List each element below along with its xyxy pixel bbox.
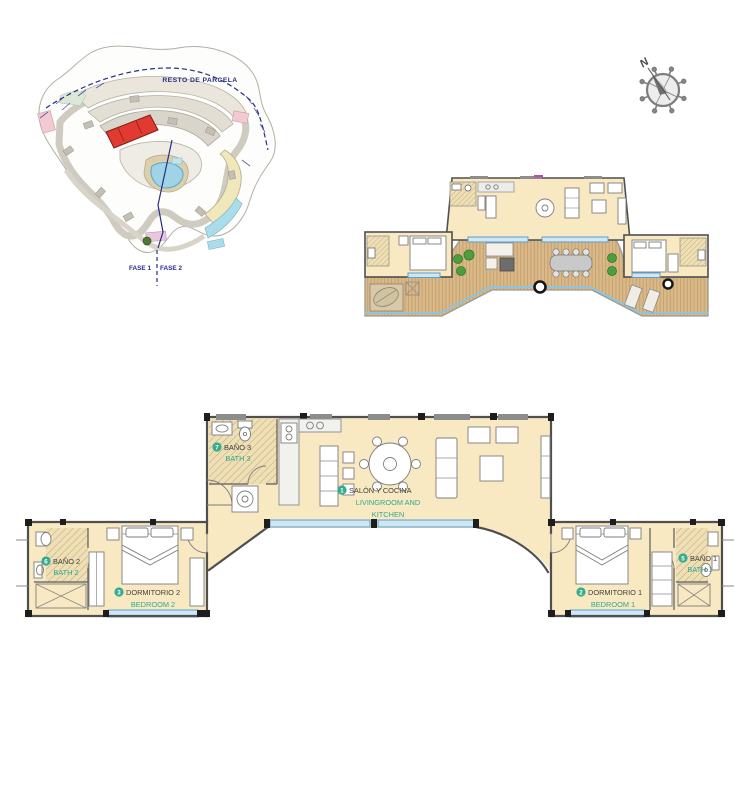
svg-text:DORMITORIO 2: DORMITORIO 2 (126, 588, 180, 597)
svg-text:BAÑO 1: BAÑO 1 (690, 554, 717, 563)
fase2-label: FASE 2 (160, 265, 182, 272)
site-pink-2 (232, 111, 249, 123)
main-floor-plan: 1 SALÓN Y COCINA LIVINGROOM AND KITCHEN … (16, 413, 734, 617)
svg-text:BAÑO 2: BAÑO 2 (53, 557, 80, 566)
svg-text:5: 5 (681, 556, 685, 563)
svg-text:BEDROOM 1: BEDROOM 1 (591, 600, 635, 609)
window-central-left (270, 520, 370, 527)
svg-text:BATH 1: BATH 1 (687, 565, 712, 574)
svg-text:SALÓN Y COCINA: SALÓN Y COCINA (349, 486, 412, 495)
svg-text:7: 7 (215, 445, 219, 452)
fase1-label: FASE 1 (129, 265, 151, 272)
washer-icon (232, 486, 258, 512)
site-cyan-block (207, 238, 224, 249)
overview-floor-plan (365, 175, 708, 316)
svg-text:6: 6 (44, 559, 48, 566)
plan-sheet-drawing: RESTO DE PARCELA FASE 1 FASE 2 N (0, 0, 749, 800)
compass-rose: N (631, 55, 695, 121)
svg-text:2: 2 (579, 590, 583, 597)
svg-text:KITCHEN: KITCHEN (372, 510, 404, 519)
site-plan: RESTO DE PARCELA FASE 1 FASE 2 (38, 46, 276, 286)
svg-text:BEDROOM 2: BEDROOM 2 (131, 600, 175, 609)
svg-text:3: 3 (117, 590, 121, 597)
plan-sheet: RESTO DE PARCELA FASE 1 FASE 2 N (0, 0, 749, 800)
svg-text:LIVINGROOM AND: LIVINGROOM AND (356, 498, 420, 507)
svg-text:BAÑO 3: BAÑO 3 (224, 443, 251, 452)
site-cyan-small (172, 158, 182, 164)
ov-kitchen-counter (478, 182, 514, 192)
window-central-right (378, 520, 476, 527)
svg-text:DORMITORIO 1: DORMITORIO 1 (588, 588, 642, 597)
resto-de-parcela-label: RESTO DE PARCELA (162, 77, 237, 84)
ov-bookcase (565, 188, 579, 218)
svg-text:1: 1 (340, 488, 344, 495)
north-label: N (638, 55, 652, 70)
site-green-dot (143, 237, 151, 245)
wardrobe2-right (190, 558, 204, 606)
wardrobe1 (652, 552, 672, 606)
svg-text:BATH 2: BATH 2 (53, 568, 78, 577)
svg-text:BATH 3: BATH 3 (225, 454, 250, 463)
ov-round-table (536, 199, 554, 217)
